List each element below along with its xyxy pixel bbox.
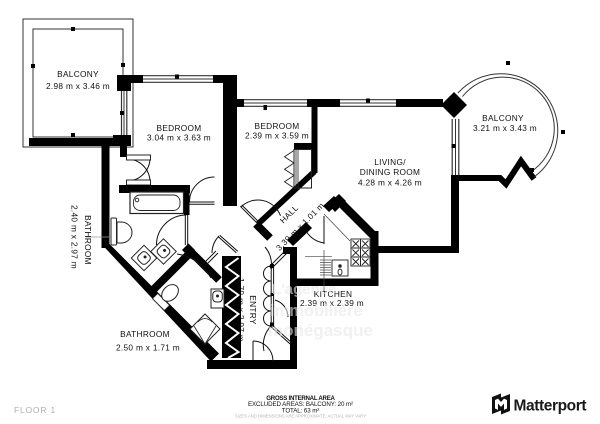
svg-text:2.50 m x 1.71 m: 2.50 m x 1.71 m bbox=[116, 343, 180, 353]
svg-text:2.40 m x 2.97 m: 2.40 m x 2.97 m bbox=[70, 205, 80, 269]
svg-text:BATHROOM: BATHROOM bbox=[83, 215, 93, 265]
svg-text:FLOOR 1: FLOOR 1 bbox=[14, 405, 56, 415]
svg-text:L'agence: L'agence bbox=[272, 281, 336, 298]
svg-text:2.39 m x 3.59 m: 2.39 m x 3.59 m bbox=[245, 131, 309, 141]
svg-text:DINING ROOM: DINING ROOM bbox=[360, 167, 420, 177]
svg-text:BEDROOM: BEDROOM bbox=[255, 121, 300, 131]
svg-text:immobilière: immobilière bbox=[270, 302, 363, 320]
svg-text:BALCONY: BALCONY bbox=[482, 113, 524, 123]
svg-text:BATHROOM: BATHROOM bbox=[120, 329, 170, 339]
svg-text:1.70 m x 2.97 m: 1.70 m x 2.97 m bbox=[236, 278, 246, 342]
svg-text:2.98 m x 3.46 m: 2.98 m x 3.46 m bbox=[46, 81, 110, 91]
svg-text:SIZES AND DIMENSIONS ARE APPRO: SIZES AND DIMENSIONS ARE APPROXIMATE, AC… bbox=[235, 414, 366, 419]
svg-text:BALCONY: BALCONY bbox=[57, 69, 99, 79]
svg-text:3.21 m x 3.43 m: 3.21 m x 3.43 m bbox=[473, 123, 537, 133]
svg-text:4.28 m x 4.26 m: 4.28 m x 4.26 m bbox=[358, 177, 422, 187]
svg-text:3.04 m x 3.63 m: 3.04 m x 3.63 m bbox=[147, 132, 211, 142]
svg-text:LIVING/: LIVING/ bbox=[374, 157, 406, 167]
svg-text:Matterport: Matterport bbox=[514, 398, 587, 415]
svg-text:ENTRY: ENTRY bbox=[248, 295, 258, 325]
svg-text:monégasque: monégasque bbox=[268, 321, 373, 340]
